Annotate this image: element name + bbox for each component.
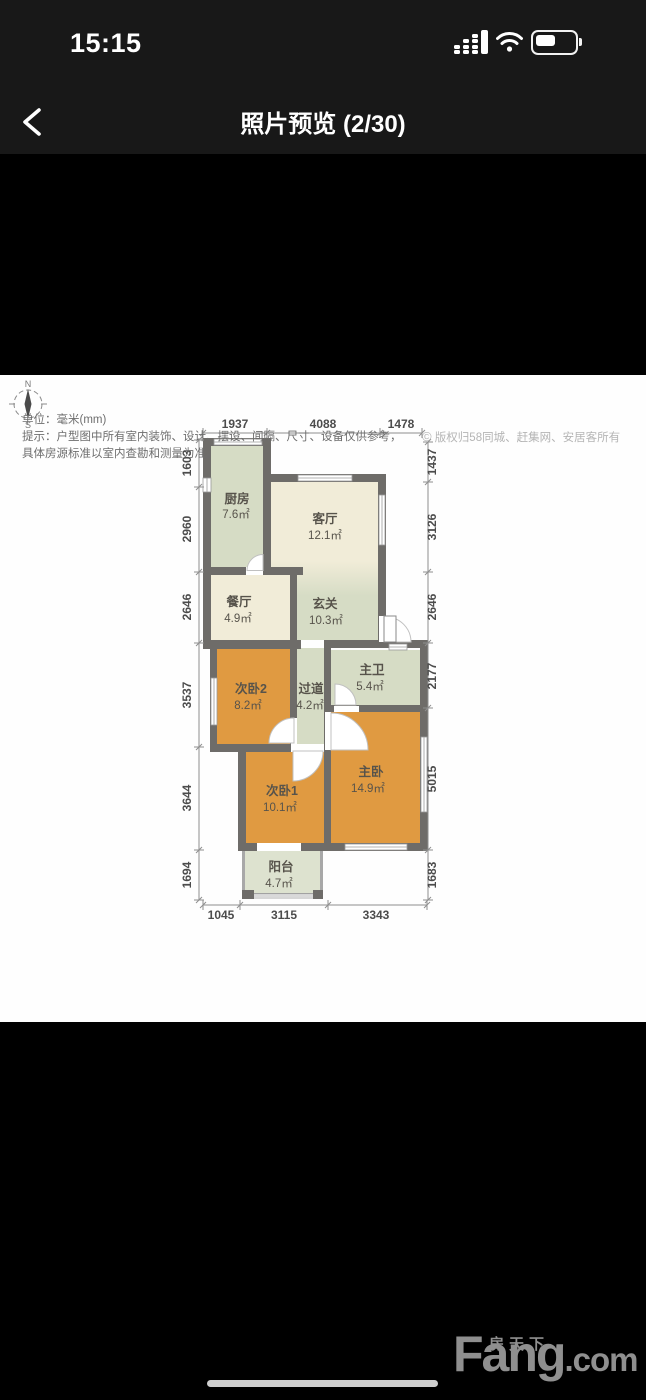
dimension-label: 2646 (425, 593, 439, 620)
room-name-living: 客厅 (311, 511, 338, 526)
balcony-post (313, 890, 323, 899)
dimension-label: 1683 (425, 861, 439, 888)
wall (210, 744, 291, 752)
wall (327, 640, 428, 648)
floor-plan-drawing: 1937408814781045311533431603296026463537… (0, 375, 646, 1022)
unit-note: 单位：毫米(mm) (22, 412, 106, 428)
dimension-label: 3343 (363, 908, 390, 922)
room-area-corridor: 4.2㎡ (296, 699, 324, 712)
room-name-bed2: 次卧2 (235, 681, 267, 696)
copyright-icon: © (422, 429, 432, 444)
dimension-label: 3644 (180, 784, 194, 811)
status-icons (454, 30, 578, 54)
nav-bar: 照片预览 (2/30) (0, 96, 646, 154)
balcony-post (242, 890, 254, 899)
room-name-bed1: 次卧1 (266, 783, 298, 798)
wall (238, 748, 246, 847)
wall (290, 567, 297, 648)
cellular-signal-icon (454, 30, 488, 54)
page-title: 照片预览 (2/30) (0, 104, 646, 139)
fang-watermark-logo: Fang .com (453, 1325, 637, 1383)
door-opening (257, 843, 301, 851)
dimension-label: 2646 (180, 593, 194, 620)
wall (203, 438, 211, 648)
dimension-label: 1694 (180, 861, 194, 888)
wall (263, 438, 271, 575)
room-area-master: 14.9㎡ (351, 782, 385, 795)
wall (324, 640, 331, 712)
dimension-label: 2177 (425, 662, 439, 689)
floor-plan-image: 1937408814781045311533431603296026463537… (0, 375, 646, 1022)
room-area-bed2: 8.2㎡ (234, 699, 262, 712)
room-area-balcony: 4.7㎡ (265, 877, 293, 890)
copyright-note: © 版权归58同城、赶集网、安居客所有 (422, 429, 620, 445)
room-area-foyer: 10.3㎡ (309, 614, 343, 627)
header-bar: 15:15 照片预览 (2/30) (0, 0, 646, 154)
dimension-label: 3115 (271, 908, 297, 922)
battery-icon (531, 30, 578, 55)
room-area-dining: 4.9㎡ (224, 612, 252, 625)
compass-north-label: N (25, 379, 32, 389)
dimension-label: 2960 (180, 515, 194, 542)
tip-line-1: 提示：户型图中所有室内装饰、设计、摆设、间隔、尺寸、设备仅供参考， (22, 429, 402, 445)
photo-viewer[interactable]: 1937408814781045311533431603296026463537… (0, 154, 646, 1400)
room-kitchen (210, 445, 263, 567)
room-name-kitchen: 厨房 (224, 491, 249, 506)
room-name-dining: 餐厅 (225, 594, 252, 609)
door-opening (325, 712, 331, 750)
status-time: 15:15 (70, 28, 134, 59)
room-area-bed1: 10.1㎡ (263, 801, 297, 814)
room-name-foyer: 玄关 (312, 596, 338, 611)
tip-line-2: 具体房源标准以室内查勘和测量为准。 (22, 446, 218, 462)
room-area-kitchen: 7.6㎡ (222, 508, 250, 521)
room-area-bath: 5.4㎡ (356, 680, 384, 693)
fang-watermark: 房天下 Fang .com (453, 1331, 643, 1397)
entry-door-leaf (384, 616, 396, 642)
dimension-label: 1045 (208, 908, 235, 922)
dimension-label: 5015 (425, 765, 439, 792)
room-name-balcony: 阳台 (268, 859, 293, 874)
battery-fill (536, 35, 555, 46)
wall (203, 640, 301, 649)
phone-screen: 15:15 照片预览 (2/30) (0, 0, 646, 1400)
room-name-master: 主卧 (358, 764, 384, 779)
wifi-icon (496, 32, 523, 52)
room-name-bath: 主卫 (359, 662, 385, 677)
dimension-label: 1437 (425, 448, 439, 475)
dimension-label: 3126 (425, 513, 439, 540)
room-area-living: 12.1㎡ (308, 529, 342, 542)
door-opening (334, 706, 359, 712)
home-indicator[interactable] (207, 1380, 438, 1387)
dimension-label: 3537 (180, 681, 194, 708)
room-name-corridor: 过道 (298, 681, 324, 696)
